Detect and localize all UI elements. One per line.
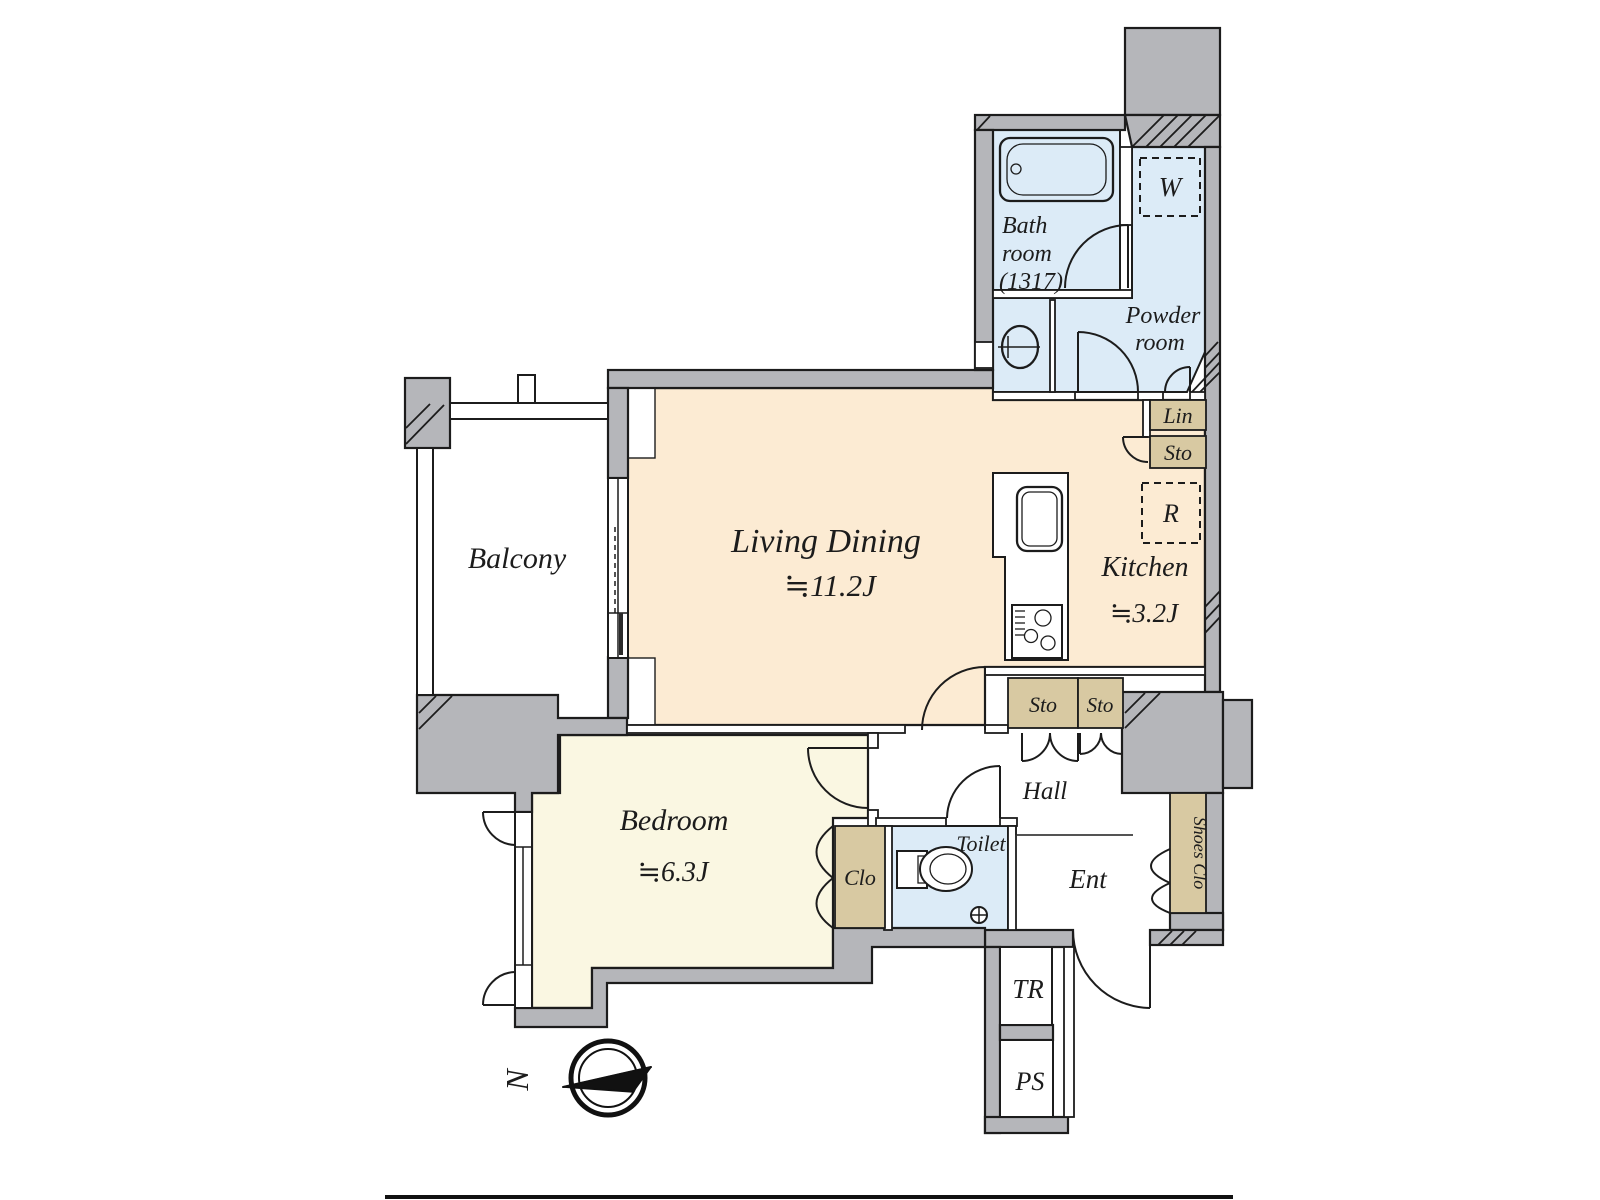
wall-powder-south-a <box>993 392 1075 400</box>
wall-bedroom-east-a <box>868 733 878 748</box>
wall-kitchen-south <box>985 667 1205 675</box>
toilet-label: Toilet <box>956 831 1006 856</box>
wall-east-strip <box>1205 147 1220 692</box>
closet-label: Clo <box>844 865 876 890</box>
powder-west-window <box>975 342 993 368</box>
bedroom-label: Bedroom <box>620 804 729 837</box>
ld-balcony-window <box>608 478 628 658</box>
hall-storage-right-label: Sto <box>1087 693 1114 717</box>
wall-toilet-east <box>1008 826 1016 930</box>
ld-column-notch-bottom <box>627 658 655 725</box>
ld-column-notch-top <box>627 388 655 458</box>
wall-east-block-bump <box>1223 700 1252 788</box>
living-dining-size: ≒11.2J <box>784 568 877 603</box>
wall-kitchen-east <box>1143 400 1150 437</box>
refrigerator-label: R <box>1162 499 1179 528</box>
bedroom-west-window <box>515 812 532 1008</box>
bathroom-label-1: Bath <box>1002 213 1047 239</box>
bedroom-size: ≒6.3J <box>638 857 710 888</box>
hall-label: Hall <box>1022 778 1068 805</box>
wall-trps-left <box>985 947 1000 1133</box>
kitchen-storage-label: Sto <box>1164 440 1192 465</box>
compass: N <box>499 1041 651 1115</box>
wall-ld-top <box>608 370 993 388</box>
wall-east-block <box>1122 692 1223 793</box>
wall-trps-bottom <box>985 1117 1068 1133</box>
vanity-divider <box>1050 300 1055 392</box>
wall-ent-bottom-left <box>985 930 1073 947</box>
wall-powder-south-b <box>1138 392 1163 400</box>
wall-tr-ps-divider <box>1000 1025 1053 1040</box>
wall-bath-powder-vertical <box>1120 147 1132 225</box>
balcony-railing-left <box>417 448 433 695</box>
balcony-label: Balcony <box>468 542 567 575</box>
bottom-rule <box>385 1195 1233 1199</box>
living-dining-label: Living Dining <box>730 523 921 560</box>
wall-bath-left <box>975 130 993 370</box>
powder-room-label-2: room <box>1135 330 1185 356</box>
wall-ld-west-lower <box>608 657 628 718</box>
kitchen-size: ≒3.2J <box>1110 598 1180 628</box>
wall-hall-south-a <box>876 818 946 826</box>
wall-ld-south-a <box>627 725 905 733</box>
wall-under-shoes-clo <box>1170 913 1223 930</box>
balcony-railing-top <box>450 403 608 419</box>
floor-plan-drawing: Balcony Living Dining ≒11.2J Kitchen ≒3.… <box>0 0 1600 1200</box>
stove <box>1012 605 1062 658</box>
washing-machine-label: W <box>1159 172 1184 202</box>
bathroom-label-2: room <box>1002 241 1052 267</box>
shoes-closet-label: Shoes Clo <box>1190 817 1210 890</box>
linen-label: Lin <box>1162 403 1192 428</box>
floor-plan-page: Balcony Living Dining ≒11.2J Kitchen ≒3.… <box>0 0 1600 1200</box>
bathroom-label-3: (1317) <box>999 269 1063 295</box>
hall-storage-left-label: Sto <box>1029 692 1057 717</box>
trunk-room-label: TR <box>1012 974 1044 1004</box>
pipe-space-label: PS <box>1015 1067 1045 1096</box>
wall-tr-east <box>1064 947 1074 1117</box>
wall-ne-column <box>1125 28 1220 115</box>
kitchen-label: Kitchen <box>1100 552 1188 583</box>
balcony-partition-notch <box>518 375 535 403</box>
powder-room-label-1: Powder <box>1125 303 1201 329</box>
wall-ld-west-upper <box>608 388 628 478</box>
wall-ld-south-b <box>985 725 1008 733</box>
compass-north-label: N <box>499 1068 535 1092</box>
wall-bath-top <box>975 115 1125 130</box>
wall-hall-south-b <box>1000 818 1017 826</box>
wall-powder-south-c <box>1190 392 1205 400</box>
entrance-label: Ent <box>1068 864 1108 894</box>
